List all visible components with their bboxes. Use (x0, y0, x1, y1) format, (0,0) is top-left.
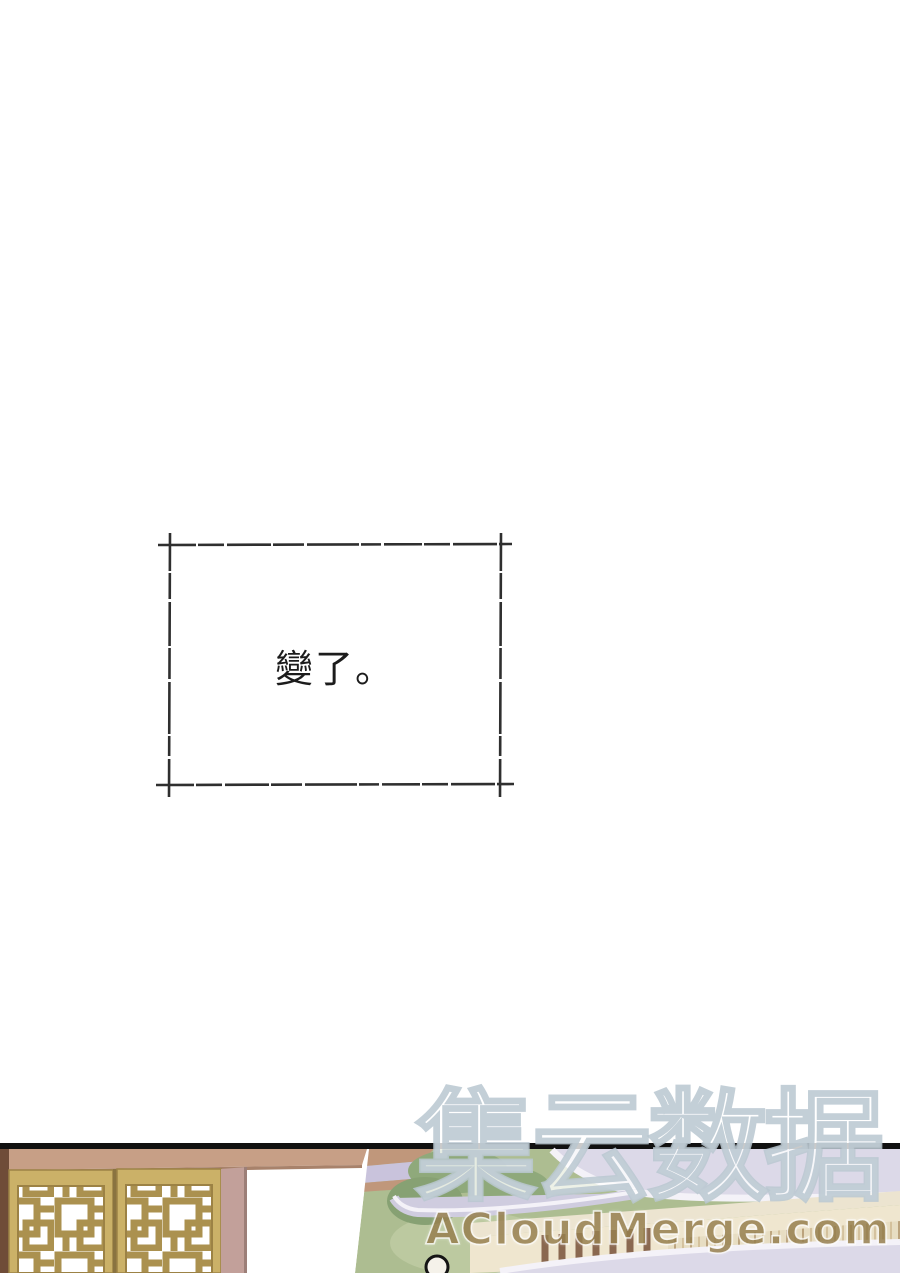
lattice-door-right (117, 1169, 221, 1273)
lattice-door-left (9, 1170, 113, 1273)
scene-panel-border (0, 1143, 900, 1149)
door-frame-strip (221, 1167, 247, 1273)
door-frame-edge (244, 1167, 247, 1273)
panel-border-right-line (500, 533, 501, 797)
character-head (426, 1256, 448, 1273)
wall-left-edge (0, 1149, 9, 1273)
narration-text: 變了。 (170, 545, 500, 785)
courtyard-scene-panel (0, 1143, 900, 1273)
comic-page: 變了。 (0, 0, 900, 1273)
